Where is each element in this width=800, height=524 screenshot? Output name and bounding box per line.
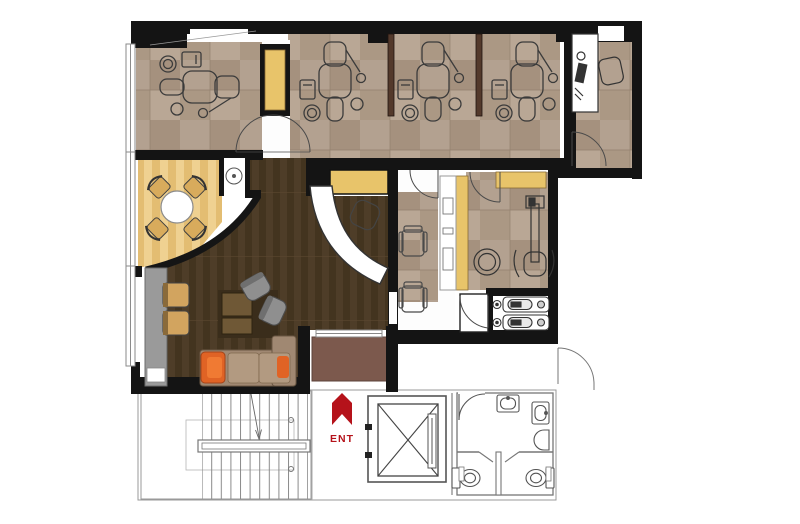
floor-plan-canvas: ENT (0, 0, 800, 524)
orange-pillow (277, 356, 289, 378)
entrance-label: ENT (330, 433, 354, 445)
coffee-table (222, 318, 252, 334)
corridor-counter (440, 176, 456, 290)
entrance-mat (312, 337, 388, 381)
lobby-side-door (540, 341, 594, 390)
reception-back-counter (330, 170, 388, 194)
elevator (365, 396, 446, 482)
toilet-rooms (452, 392, 554, 496)
autoclave (503, 297, 549, 312)
treatment-bay-floor (288, 32, 560, 160)
autoclave (503, 315, 549, 330)
washbasin-left (497, 395, 519, 412)
entrance-sliding-door (316, 330, 382, 337)
treatment-room-1-floor (136, 42, 262, 152)
cabinet-between-rooms (265, 50, 285, 110)
toilet-left (452, 468, 480, 488)
urinal (534, 430, 549, 450)
staircase (141, 391, 311, 499)
washbasin-right (532, 402, 549, 424)
xray-top-cabinet (496, 172, 546, 188)
stair-rail (198, 440, 310, 452)
window-wall-left (126, 44, 135, 366)
consult-round-table (161, 191, 193, 223)
closet-sink (224, 158, 245, 196)
floor-plan: ENT (0, 0, 800, 524)
